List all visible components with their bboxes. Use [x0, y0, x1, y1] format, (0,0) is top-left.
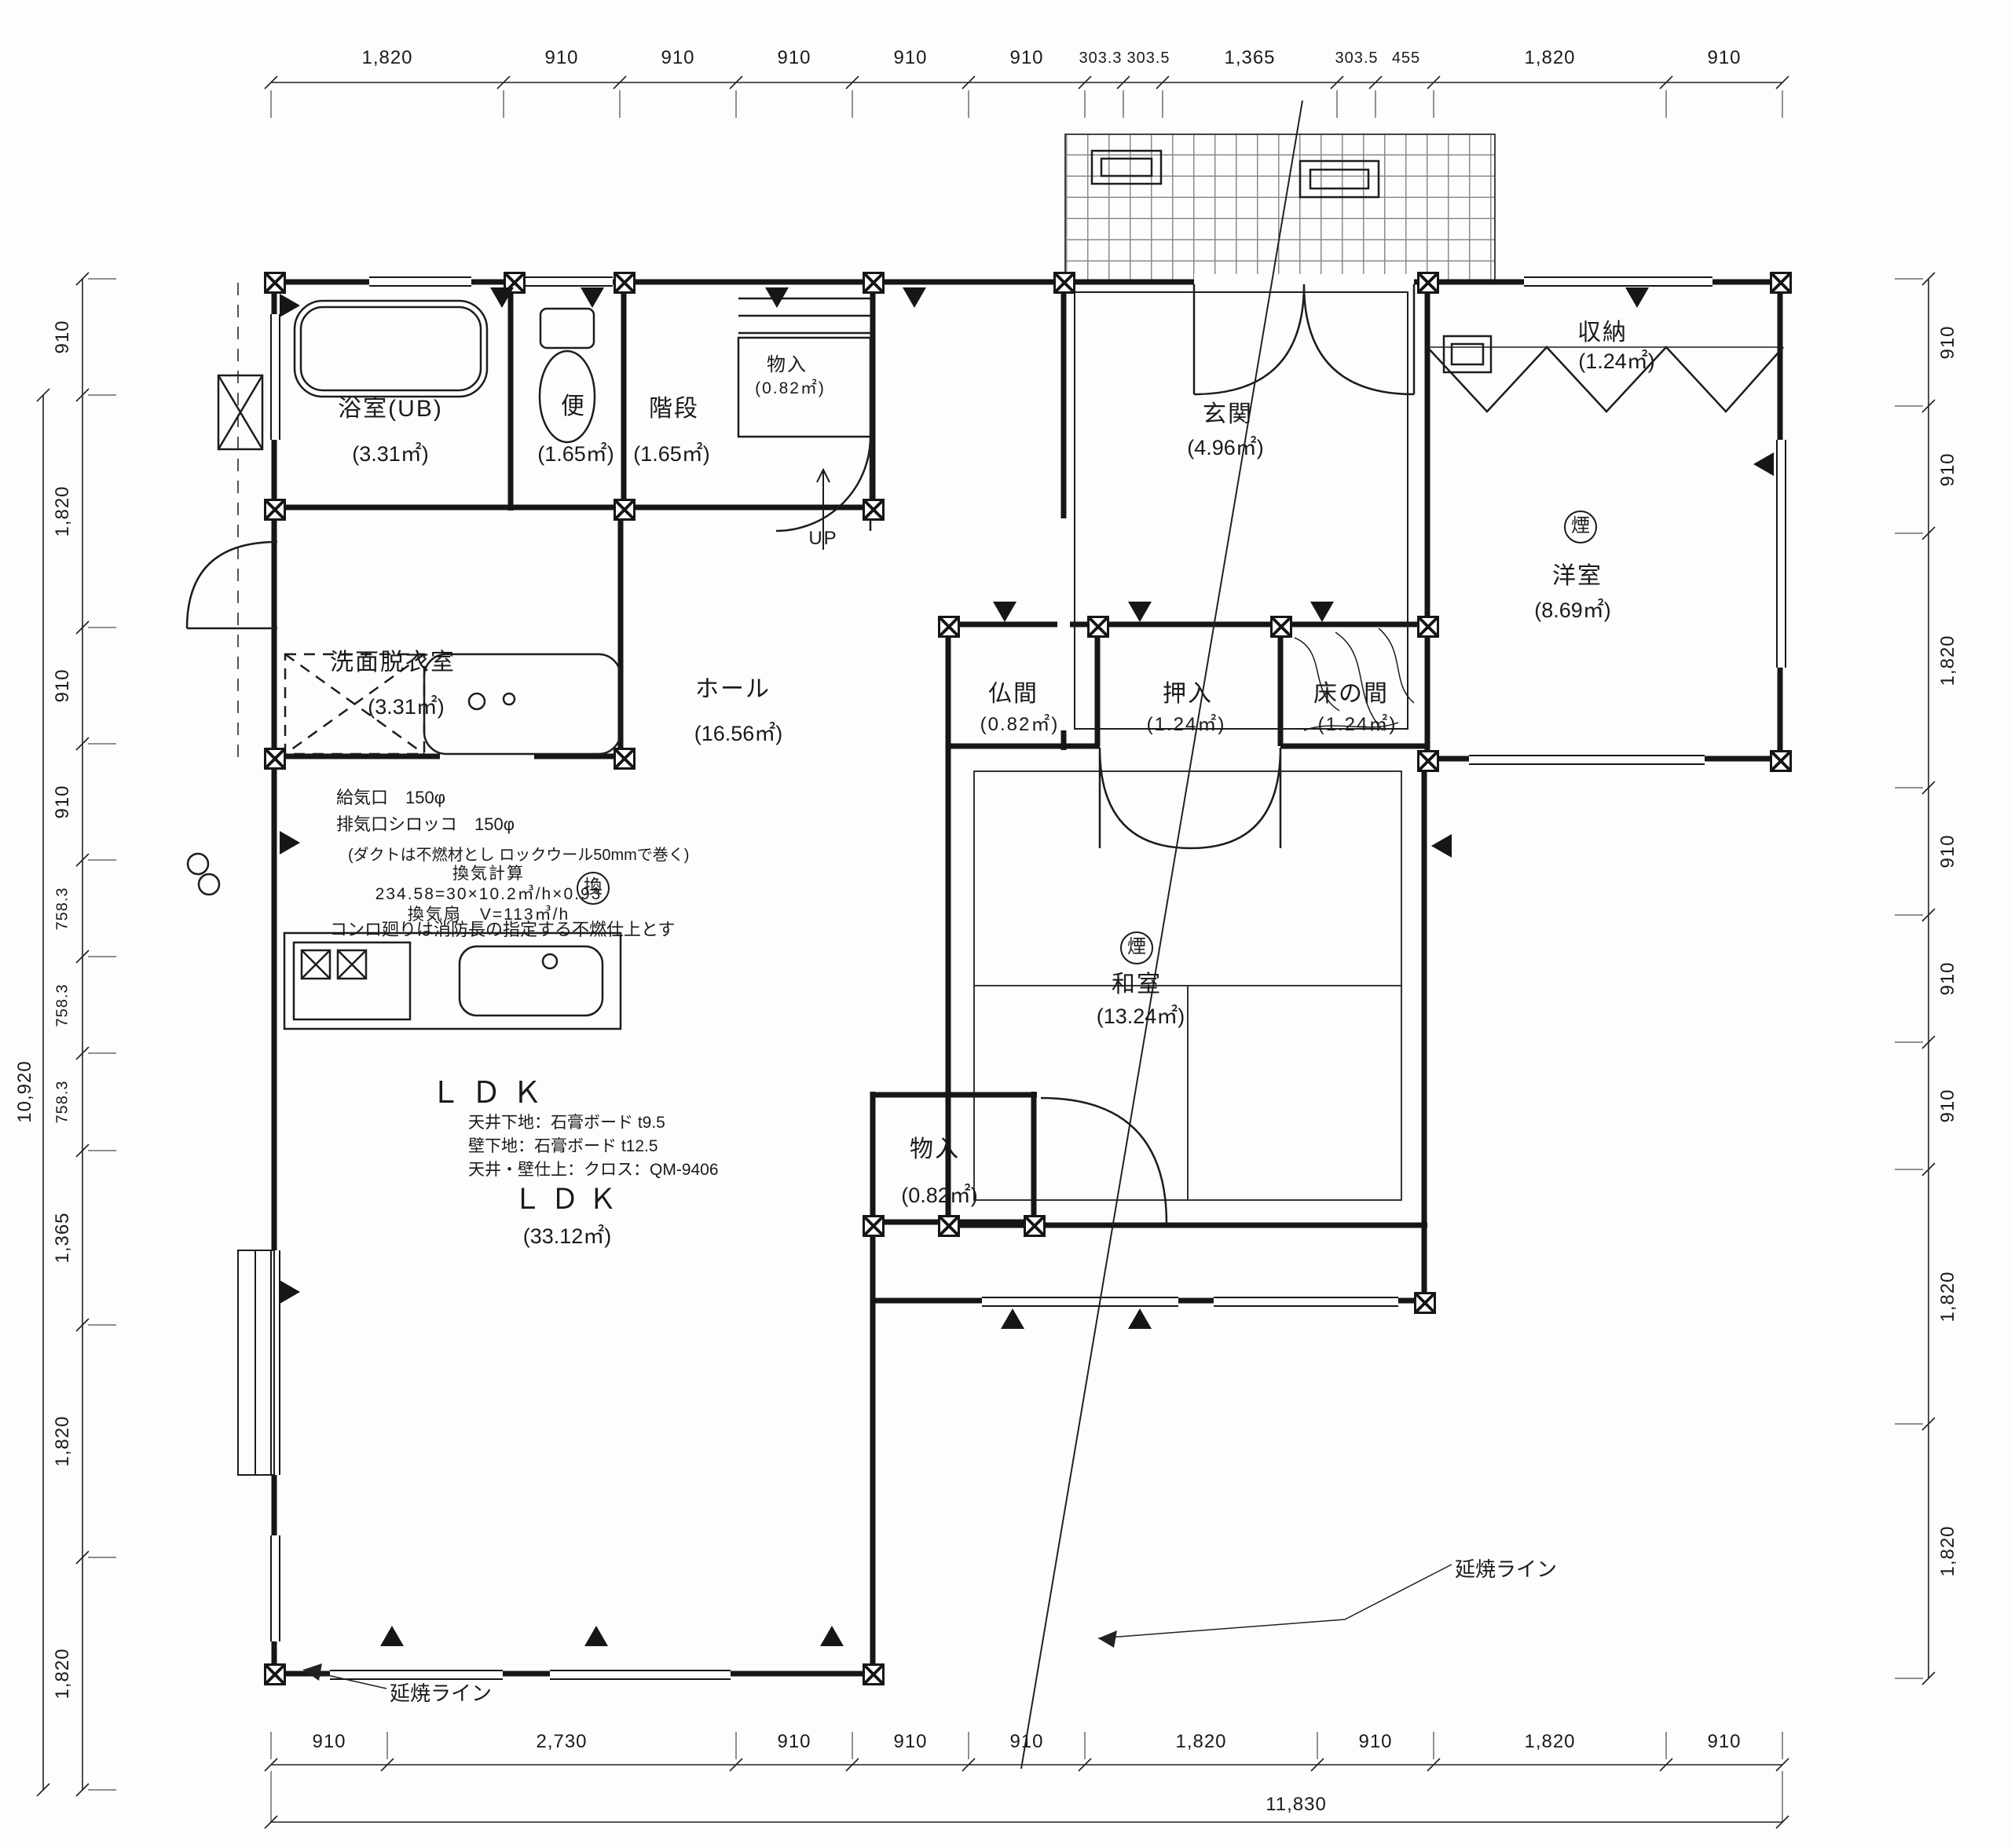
kitchen-counter [284, 933, 621, 1029]
post [863, 1215, 885, 1237]
dim-left: 758.3 [54, 1080, 72, 1123]
dim-bottom: 1,820 [1175, 1731, 1226, 1753]
wall-marker [380, 1626, 404, 1646]
wall-marker [1128, 1308, 1152, 1329]
wall-marker [1431, 834, 1452, 858]
post [1770, 750, 1792, 772]
fire-line-label: 延焼ライン [1455, 1553, 1557, 1583]
smoke-detector-mark: 煙 [1120, 931, 1153, 964]
wall-marker [1625, 287, 1649, 308]
room-label-tokonoma: 床の間 [1313, 674, 1389, 708]
room-label-oshiire: 押入 [1163, 674, 1213, 708]
dim-left: 758.3 [54, 887, 72, 930]
dim-right: 910 [1937, 1089, 1959, 1122]
toilet-tank [540, 309, 594, 348]
wall-marker [280, 1280, 300, 1304]
post [1417, 616, 1439, 638]
dim-bottom: 910 [893, 1731, 927, 1753]
room-area-ldk: (33.12㎡) [523, 1219, 612, 1250]
post [264, 272, 286, 294]
kitchen-sink [460, 946, 603, 1015]
dim-left: 910 [52, 320, 74, 353]
dim-bottom-total: 11,830 [1266, 1794, 1327, 1816]
dim-bottom: 2,730 [536, 1731, 587, 1753]
room-area-genkan: (4.96㎡) [1187, 430, 1264, 461]
dim-top: 910 [893, 47, 927, 69]
room-area-hall: (16.56㎡) [694, 716, 783, 747]
ldk-spec-line: 天井下地：石膏ボード t9.5 [468, 1111, 719, 1135]
room-label-youshitsu: 洋室 [1552, 556, 1603, 591]
dim-left: 1,820 [52, 1415, 74, 1466]
ldk-spec-block: ＬＤＫ 天井下地：石膏ボード t9.5 壁下地：石膏ボード t12.5 天井・壁… [430, 1068, 719, 1182]
room-area-youshitsu: (8.69㎡) [1534, 593, 1611, 624]
post [863, 1663, 885, 1685]
dim-left: 1,820 [52, 485, 74, 536]
dim-left: 910 [52, 785, 74, 818]
dim-right: 910 [1937, 325, 1959, 359]
post [1417, 272, 1439, 294]
room-label-hall: ホール [695, 669, 771, 704]
floor-plan-canvas: 浴室(UB) (3.31㎡) 便 (1.65㎡) 階段 (1.65㎡) 物入 (… [0, 0, 2011, 1848]
dimension-lines [37, 76, 1935, 1828]
wall-marker [584, 1626, 608, 1646]
room-label-ldk-closet: 物入 [910, 1129, 960, 1164]
room-label-bath: 浴室(UB) [338, 389, 443, 423]
post [1024, 1215, 1046, 1237]
wall-marker [1310, 602, 1334, 622]
dim-top: 910 [777, 47, 811, 69]
washitsu-door-arc [1041, 1098, 1167, 1224]
wall-marker [820, 1626, 844, 1646]
room-area-bath: (3.31㎡) [352, 437, 429, 467]
stair-treads [738, 298, 870, 333]
room-label-butsuma: 仏間 [988, 674, 1038, 708]
post [1770, 272, 1792, 294]
post [1417, 750, 1439, 772]
entrance-doors [1194, 284, 1414, 394]
post [863, 272, 885, 294]
wall-marker [765, 287, 789, 308]
post [938, 1215, 960, 1237]
room-area-washitsu: (13.24㎡) [1097, 999, 1185, 1030]
room-label-senmen: 洗面脱衣室 [330, 642, 456, 677]
dim-top: 303.3 [1079, 49, 1122, 68]
room-area-toilet: (1.65㎡) [537, 437, 614, 467]
post [1053, 272, 1075, 294]
dim-bottom: 910 [1009, 1731, 1043, 1753]
stove [294, 942, 410, 1019]
room-label-washitsu: 和室 [1112, 964, 1162, 999]
wall-marker [993, 602, 1016, 622]
dim-top: 910 [661, 47, 694, 69]
room-label-stairs-closet: 物入 [767, 349, 808, 376]
room-area-shunou: (1.24㎡) [1578, 344, 1655, 375]
room-area-stairs: (1.65㎡) [633, 437, 710, 467]
meter [188, 854, 208, 874]
wall-marker [1753, 452, 1774, 476]
tatami-lines [974, 771, 1401, 1200]
dim-left: 1,820 [52, 1648, 74, 1699]
room-label-genkan: 玄関 [1203, 394, 1253, 429]
dim-top: 303.5 [1335, 49, 1378, 68]
dim-left: 1,365 [52, 1212, 74, 1263]
dim-left-total: 10,920 [14, 1060, 36, 1122]
dim-left: 758.3 [54, 983, 72, 1026]
room-label-stairs: 階段 [649, 389, 699, 423]
room-area-tokonoma: (1.24㎡) [1318, 708, 1397, 736]
dim-right: 910 [1937, 834, 1959, 868]
wall-marker [280, 831, 300, 854]
dim-top: 1,365 [1224, 47, 1275, 69]
post [614, 748, 636, 770]
vent-note-supply: 給気口 150φ [336, 784, 445, 809]
room-label-ldk: ＬＤＫ [513, 1176, 626, 1217]
wall-marker [581, 287, 604, 308]
dim-top: 910 [544, 47, 578, 69]
dim-top: 910 [1009, 47, 1043, 69]
room-area-ldk-closet: (0.82㎡) [901, 1178, 978, 1209]
post [264, 1663, 286, 1685]
dim-bottom: 910 [777, 1731, 811, 1753]
windows [268, 274, 1786, 1680]
up-label: UP [808, 528, 837, 550]
dim-top: 1,820 [361, 47, 412, 69]
dim-top: 455 [1392, 49, 1420, 68]
dim-bottom: 1,820 [1524, 1731, 1575, 1753]
wall-marker [490, 287, 514, 308]
smoke-detector-mark: 煙 [1564, 510, 1597, 543]
ldk-spec-line: 壁下地：石膏ボード t12.5 [468, 1135, 719, 1158]
dim-bottom: 910 [1707, 1731, 1741, 1753]
room-label-shunou: 収納 [1577, 313, 1628, 347]
room-label-toilet: 便 [561, 386, 586, 421]
konro-note: コンロ廻りは消防長の指定する不燃仕上とす [330, 916, 675, 941]
dim-bottom: 910 [312, 1731, 346, 1753]
dim-top: 303.5 [1126, 49, 1170, 68]
post [1270, 616, 1292, 638]
post [1087, 616, 1109, 638]
dim-right: 1,820 [1937, 1271, 1959, 1322]
vent-note-exhaust: 排気口シロッコ 150φ [336, 811, 515, 836]
room-area-senmen: (3.31㎡) [368, 690, 445, 720]
wall-lines [271, 279, 1783, 1677]
room-area-oshiire: (1.24㎡) [1147, 708, 1226, 736]
bathtub [295, 301, 487, 397]
dim-right: 1,820 [1937, 1525, 1959, 1576]
dim-top: 910 [1707, 47, 1741, 69]
side-door-arc [187, 542, 277, 628]
post [863, 499, 885, 521]
post [614, 272, 636, 294]
wall-marker [903, 287, 926, 308]
post [264, 499, 286, 521]
dim-top: 1,820 [1524, 47, 1575, 69]
floorplan-drawing [0, 0, 2011, 1848]
wall-marker [1128, 602, 1152, 622]
room-area-butsuma: (0.82㎡) [980, 708, 1060, 736]
post [1414, 1292, 1436, 1314]
post [264, 748, 286, 770]
dim-right: 1,820 [1937, 635, 1959, 686]
wall-marker [1001, 1308, 1024, 1329]
dim-right: 910 [1937, 452, 1959, 486]
dim-left: 910 [52, 668, 74, 702]
dim-bottom: 910 [1358, 1731, 1392, 1753]
post [614, 499, 636, 521]
dim-right: 910 [1937, 961, 1959, 995]
ldk-spec-title: ＬＤＫ [430, 1068, 719, 1111]
room-area-stairs-closet: (0.82㎡) [755, 375, 826, 399]
fire-line-label: 延焼ライン [390, 1678, 492, 1707]
wall-marker [280, 294, 300, 317]
post [938, 616, 960, 638]
